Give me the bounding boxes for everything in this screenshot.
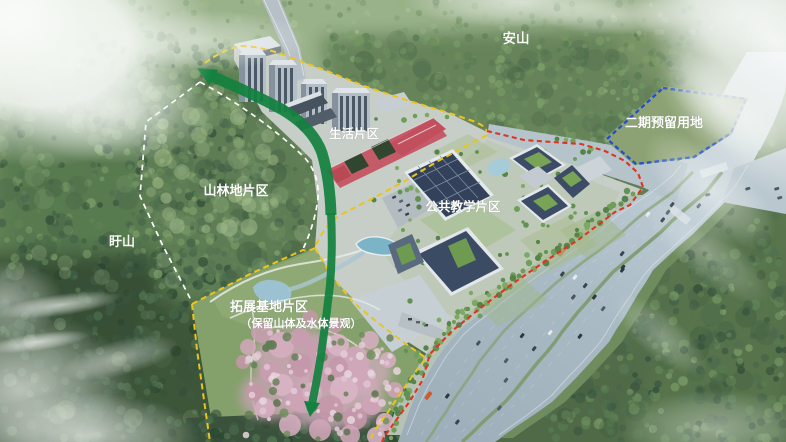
svg-text:生活片区: 生活片区 <box>329 126 380 141</box>
svg-text:（保留山体及水体景观）: （保留山体及水体景观） <box>241 316 362 330</box>
svg-text:盱山: 盱山 <box>109 234 135 249</box>
svg-text:公共教学片区: 公共教学片区 <box>425 199 501 214</box>
svg-text:山林地片区: 山林地片区 <box>203 183 268 198</box>
svg-text:安山: 安山 <box>503 30 530 46</box>
svg-text:二期预留用地: 二期预留用地 <box>625 115 703 130</box>
svg-text:拓展基地片区: 拓展基地片区 <box>230 299 308 314</box>
